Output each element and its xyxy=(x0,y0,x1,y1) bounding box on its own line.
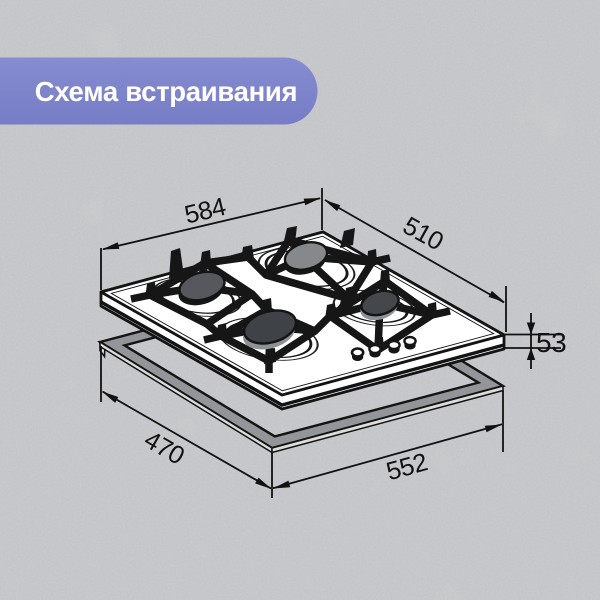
svg-text:Схема встраивания: Схема встраивания xyxy=(35,76,298,107)
svg-text:53: 53 xyxy=(536,327,566,358)
